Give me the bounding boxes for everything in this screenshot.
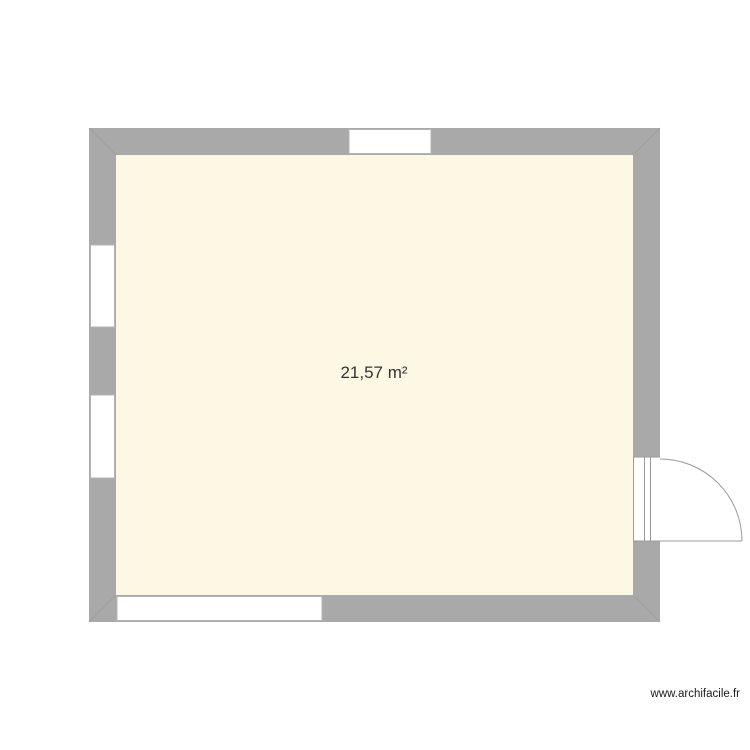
window-left-lower[interactable] — [91, 395, 115, 478]
watermark-text: www.archifacile.fr — [651, 687, 740, 701]
window-left-upper[interactable] — [91, 245, 115, 327]
door-right[interactable] — [633, 457, 742, 541]
window-bottom[interactable] — [117, 597, 322, 621]
door-opening — [633, 457, 660, 541]
room-area-label: 21,57 m² — [340, 363, 407, 383]
window-top[interactable] — [349, 130, 431, 154]
door-swing-arc — [660, 459, 742, 541]
floorplan-canvas: 21,57 m² www.archifacile.fr — [0, 0, 750, 750]
